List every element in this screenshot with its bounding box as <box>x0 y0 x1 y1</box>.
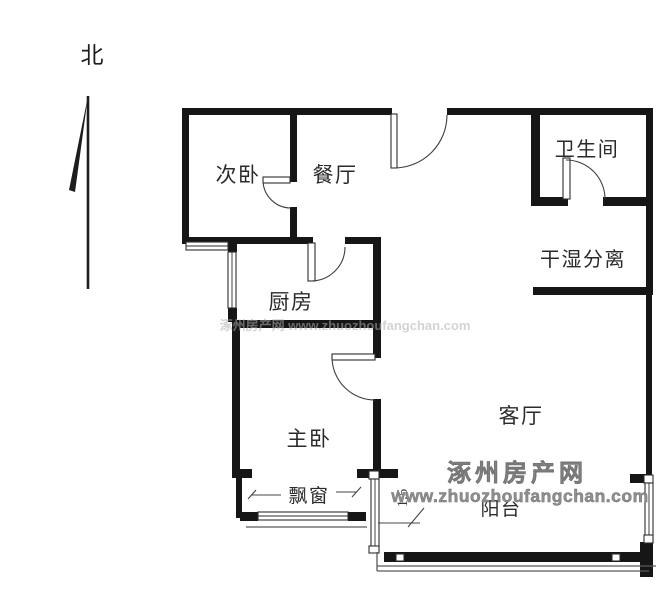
wall-master-left <box>232 320 240 472</box>
room-label-dry-wet-separation: 干湿分离 <box>540 248 626 271</box>
balcony-window-cap-left <box>396 554 404 561</box>
north-arrow-head <box>69 96 88 192</box>
floorplan-image: 北 <box>0 0 671 600</box>
kitchen-left-window <box>228 252 236 308</box>
wall-balcony-corner-right <box>640 542 653 577</box>
bay-balcony-glass-partition <box>369 471 379 553</box>
wall-kitchen-right <box>373 244 381 322</box>
dimension-tick <box>408 508 424 527</box>
north-label: 北 <box>81 43 104 68</box>
wall-master-bottom-stub-left <box>232 469 252 478</box>
room-label-living-room: 客厅 <box>499 404 544 428</box>
kitchen-door <box>308 243 345 281</box>
watermark-faint-line: 涿州房产网 www.zhuozhoufangchan.com <box>220 318 471 333</box>
room-label-dining-room: 餐厅 <box>313 163 358 187</box>
north-indicator: 北 <box>69 43 104 289</box>
wall-bedroom2-left <box>182 108 189 244</box>
wall-baywindow-corner-left <box>240 512 258 521</box>
wall-master-divider-lower <box>373 399 381 472</box>
room-label-bathroom: 卫生间 <box>555 138 620 161</box>
wall-top-right <box>447 108 653 115</box>
bedroom2-door <box>263 177 291 208</box>
wall-baywindow-corner-right <box>348 512 366 521</box>
room-label-kitchen: 厨房 <box>269 290 314 314</box>
watermark-site-url: www.zhuozhoufangchan.com <box>390 486 648 506</box>
wall-kitchen-left-stub-top <box>228 237 237 252</box>
wall-bathroom-bottom-right <box>603 197 653 206</box>
balcony-window-cap-right <box>612 554 620 561</box>
room-label-secondary-bedroom: 次卧 <box>216 163 261 187</box>
wall-kitchen-top-right <box>345 237 381 244</box>
room-label-master-bedroom: 主卧 <box>287 427 332 451</box>
wall-bedroom2-divider-lower <box>290 207 297 244</box>
wall-right-mid <box>646 295 652 475</box>
watermark-site-name: 涿州房产网 <box>447 459 587 487</box>
wall-bathroom-left <box>531 108 540 202</box>
wall-bedroom2-divider-upper <box>290 108 297 182</box>
floorplan-svg: 北 <box>0 0 671 600</box>
baywindow-glass <box>258 512 348 520</box>
room-label-bay-window: 飘窗 <box>288 485 329 507</box>
watermark: 涿州房产网 www.zhuozhoufangchan.com 涿州房产网 www… <box>220 318 649 506</box>
wall-balcony-bottom <box>384 552 646 562</box>
entry-door <box>391 114 447 168</box>
window-sills <box>246 527 656 571</box>
wall-drywet-bottom <box>533 287 653 295</box>
wall-top-left <box>182 108 392 115</box>
master-bedroom-door <box>332 354 375 400</box>
wall-right-upper <box>646 108 653 295</box>
bathroom-door <box>563 158 605 199</box>
bedroom2-window <box>186 242 228 250</box>
